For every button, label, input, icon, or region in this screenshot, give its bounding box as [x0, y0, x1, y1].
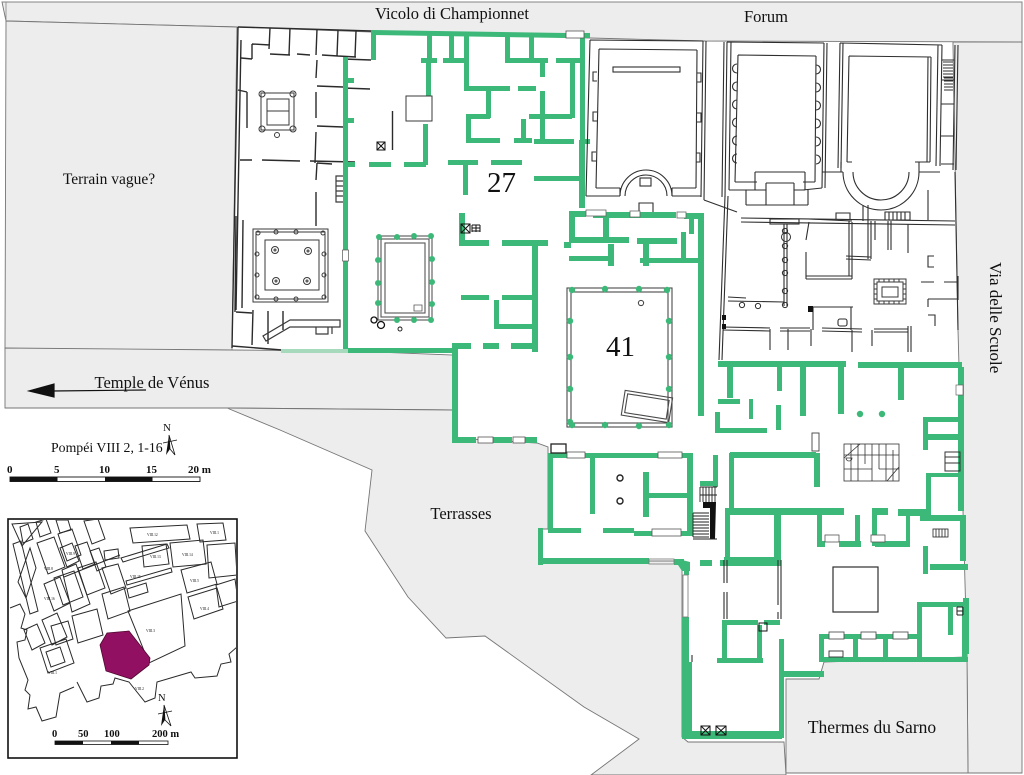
svg-text:Thermes du Sarno: Thermes du Sarno	[808, 717, 937, 737]
svg-text:Forum: Forum	[744, 7, 788, 26]
svg-text:50: 50	[78, 729, 89, 740]
svg-text:Terrain vague?: Terrain vague?	[63, 171, 155, 188]
svg-text:VIII.8: VIII.8	[44, 567, 53, 571]
svg-text:Pompéi VIII 2, 1-16: Pompéi VIII 2, 1-16	[51, 440, 163, 455]
svg-text:Via delle Scuole: Via delle Scuole	[986, 262, 1005, 373]
svg-text:VIII.5: VIII.5	[190, 579, 199, 583]
svg-text:VIII.12: VIII.12	[147, 533, 158, 537]
svg-text:VIII.9: VIII.9	[66, 552, 75, 556]
svg-text:N: N	[163, 422, 171, 434]
svg-text:20 m: 20 m	[188, 464, 211, 476]
svg-text:27: 27	[487, 167, 516, 199]
svg-text:Vicolo di Championnet: Vicolo di Championnet	[375, 4, 529, 23]
svg-text:VIII.13: VIII.13	[150, 555, 161, 559]
svg-text:200 m: 200 m	[152, 729, 179, 740]
svg-text:Temple de Vénus: Temple de Vénus	[95, 373, 210, 392]
svg-text:10: 10	[99, 464, 111, 476]
svg-text:VIII.1: VIII.1	[210, 531, 219, 535]
svg-text:VIII.1: VIII.1	[48, 671, 57, 675]
svg-text:5: 5	[54, 464, 60, 476]
svg-text:VIII.2: VIII.2	[135, 687, 144, 691]
svg-text:N: N	[158, 693, 166, 704]
svg-text:VIII.14: VIII.14	[182, 553, 193, 557]
svg-text:0: 0	[52, 729, 57, 740]
svg-text:0: 0	[7, 464, 13, 476]
svg-text:VIII.4: VIII.4	[200, 607, 209, 611]
svg-text:VIII.16: VIII.16	[44, 597, 55, 601]
svg-text:Terrasses: Terrasses	[430, 504, 491, 523]
svg-text:VIII.3: VIII.3	[146, 629, 155, 633]
svg-text:100: 100	[104, 729, 120, 740]
svg-text:15: 15	[146, 464, 158, 476]
svg-text:VIII.15: VIII.15	[130, 575, 141, 579]
svg-text:41: 41	[606, 331, 635, 363]
